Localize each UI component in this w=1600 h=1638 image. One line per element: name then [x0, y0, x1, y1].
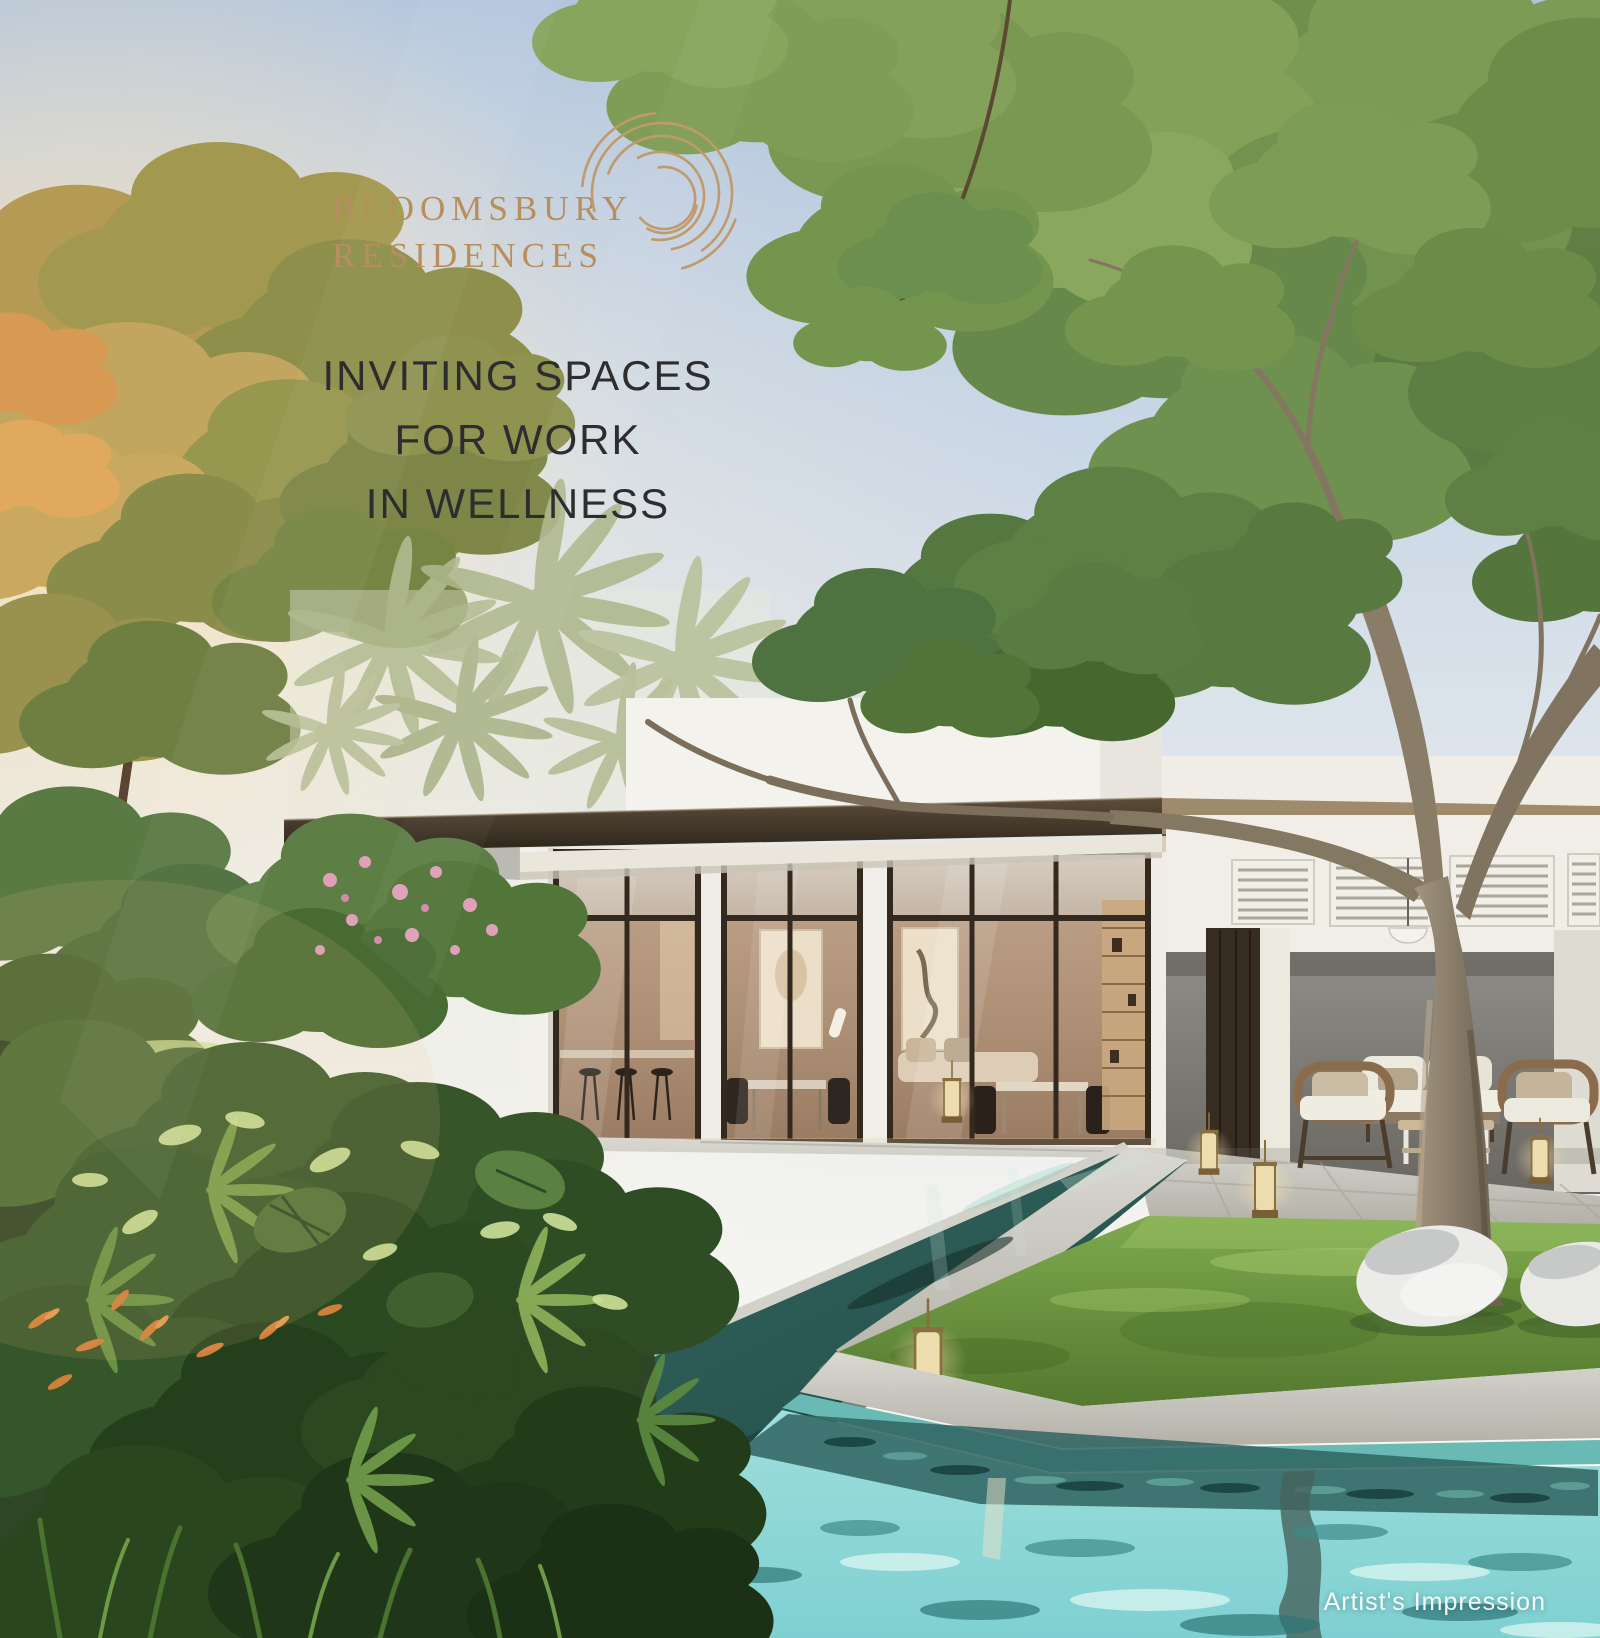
glass-wall-center — [724, 852, 860, 1142]
headline: INVITING SPACES FOR WORK IN WELLNESS — [268, 344, 768, 536]
headline-line-1: INVITING SPACES — [268, 344, 768, 408]
logo-arcs-icon — [560, 95, 770, 295]
scene-illustration — [0, 0, 1600, 1638]
marketing-poster: BLOOMSBURY RESIDENCES INVITING SPACES FO… — [0, 0, 1600, 1638]
headline-line-2: FOR WORK — [268, 408, 768, 472]
headline-line-3: IN WELLNESS — [268, 472, 768, 536]
artists-impression-caption: Artist's Impression — [1324, 1588, 1546, 1617]
